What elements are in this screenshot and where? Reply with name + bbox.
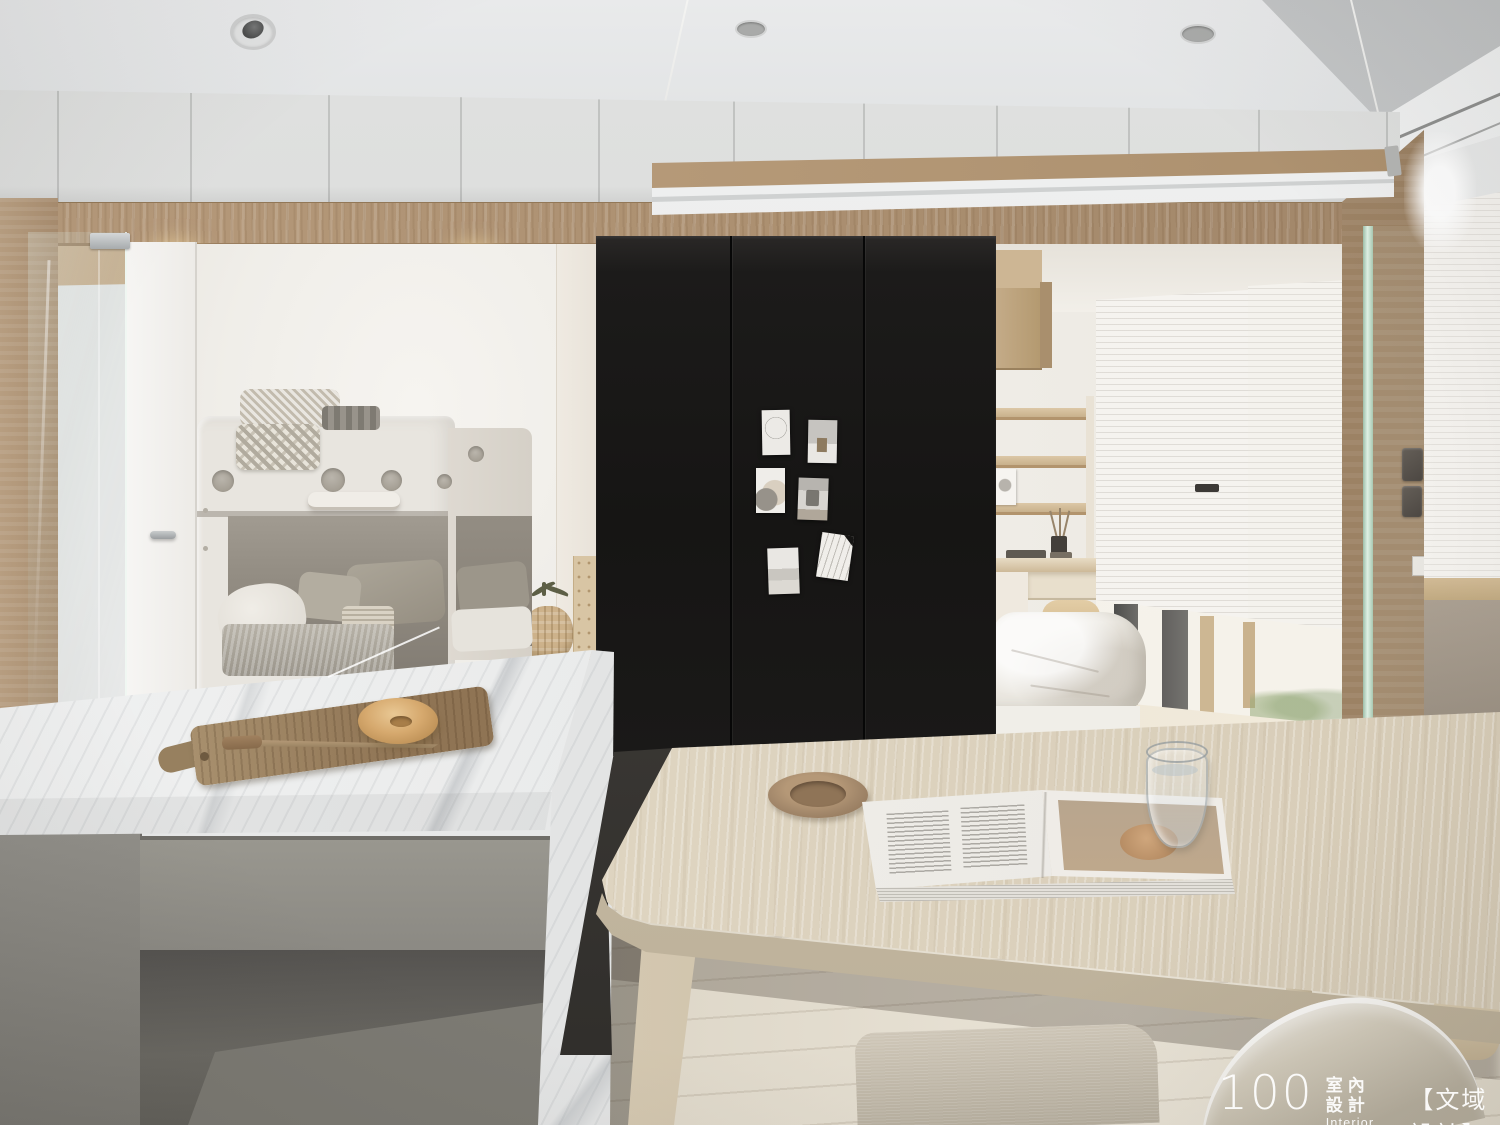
glass-door-handle: [1195, 484, 1219, 492]
window-sill-right: [1424, 578, 1500, 602]
patterned-pillow: [236, 424, 320, 470]
window-wood-mullion: [1200, 616, 1214, 716]
bedroom-cabinet-side: [1040, 282, 1052, 368]
bagel-hole: [390, 716, 412, 727]
watermark-text-block: 室內設計 Interior Design: [1326, 1076, 1384, 1125]
watermark-cn: 室內設計: [1326, 1076, 1384, 1116]
plant-stem-icon: [542, 582, 546, 596]
gray-cabinet-panel: [0, 833, 142, 1125]
black-sliding-panel: [596, 236, 996, 756]
knife-handle: [222, 735, 263, 750]
book-text-column: [886, 810, 951, 875]
spotlight-lens: [239, 17, 266, 41]
hinge-dot: [203, 508, 208, 513]
pinned-photo-card: [762, 410, 791, 455]
watermark-en: Interior Design: [1326, 1116, 1384, 1125]
chair-seat: [854, 1023, 1159, 1125]
bunk-circle-cutout: [321, 468, 345, 492]
desk-drawer: [1028, 572, 1102, 600]
wall-shelf: [996, 456, 1092, 468]
cutting-board-hole: [200, 752, 209, 761]
gray-cabinet-drawer: [140, 836, 550, 956]
white-door: [125, 242, 197, 758]
bunk-circle-cutout: [381, 470, 402, 491]
wooden-dish-recess: [790, 781, 846, 807]
watermark-studio: 【文域設計】: [1409, 1080, 1500, 1125]
window-mullion: [1162, 610, 1188, 722]
light-switch: [1402, 486, 1422, 517]
panel-seam: [730, 236, 732, 756]
pinned-photo-card: [797, 477, 828, 520]
glass-sliding-door-left: [28, 232, 127, 755]
pinned-photo-card: [767, 547, 800, 594]
downlight-icon: [735, 20, 767, 38]
white-bedding: [451, 606, 533, 652]
downlight-icon: [1180, 24, 1216, 44]
diffuser-reed: [1059, 508, 1061, 536]
folded-blanket: [322, 406, 380, 430]
glass-reflection: [98, 250, 100, 720]
gimbal-spotlight-icon: [230, 14, 276, 50]
pinned-photo-card: [808, 420, 838, 463]
water-glass-rim: [1146, 741, 1208, 763]
wall-shelf: [996, 408, 1092, 420]
bedroom-wood-cabinet: [996, 288, 1042, 370]
shelf-end-panel: [1086, 396, 1094, 568]
bunk-circle-cutout: [468, 446, 484, 462]
window-light-glow: [1404, 132, 1476, 252]
pinned-photo-card: [756, 468, 785, 513]
watermark: 100 室內設計 Interior Design 【文域設計】: [1218, 1074, 1500, 1125]
panel-seam: [863, 236, 865, 756]
glass-door-edge: [1363, 226, 1373, 760]
book-text-column: [960, 804, 1027, 869]
glass-clamp: [90, 233, 130, 249]
pinned-photo-card: [816, 532, 854, 581]
bunk-circle-cutout: [212, 470, 234, 492]
watermark-logo: 100: [1218, 1074, 1314, 1114]
bunk-grab-bar: [308, 492, 400, 510]
bunk-circle-cutout: [437, 474, 452, 489]
interior-photo: 100 室內設計 Interior Design 【文域設計】: [0, 0, 1500, 1125]
light-switch: [1402, 448, 1423, 481]
hinge-dot: [203, 546, 208, 551]
gray-blanket: [222, 624, 394, 676]
water-surface: [1152, 764, 1198, 776]
door-handle: [150, 531, 176, 539]
built-in-desk: [996, 558, 1102, 572]
art-print: [994, 469, 1016, 505]
bedroom-upper-cabinet: [996, 250, 1042, 290]
